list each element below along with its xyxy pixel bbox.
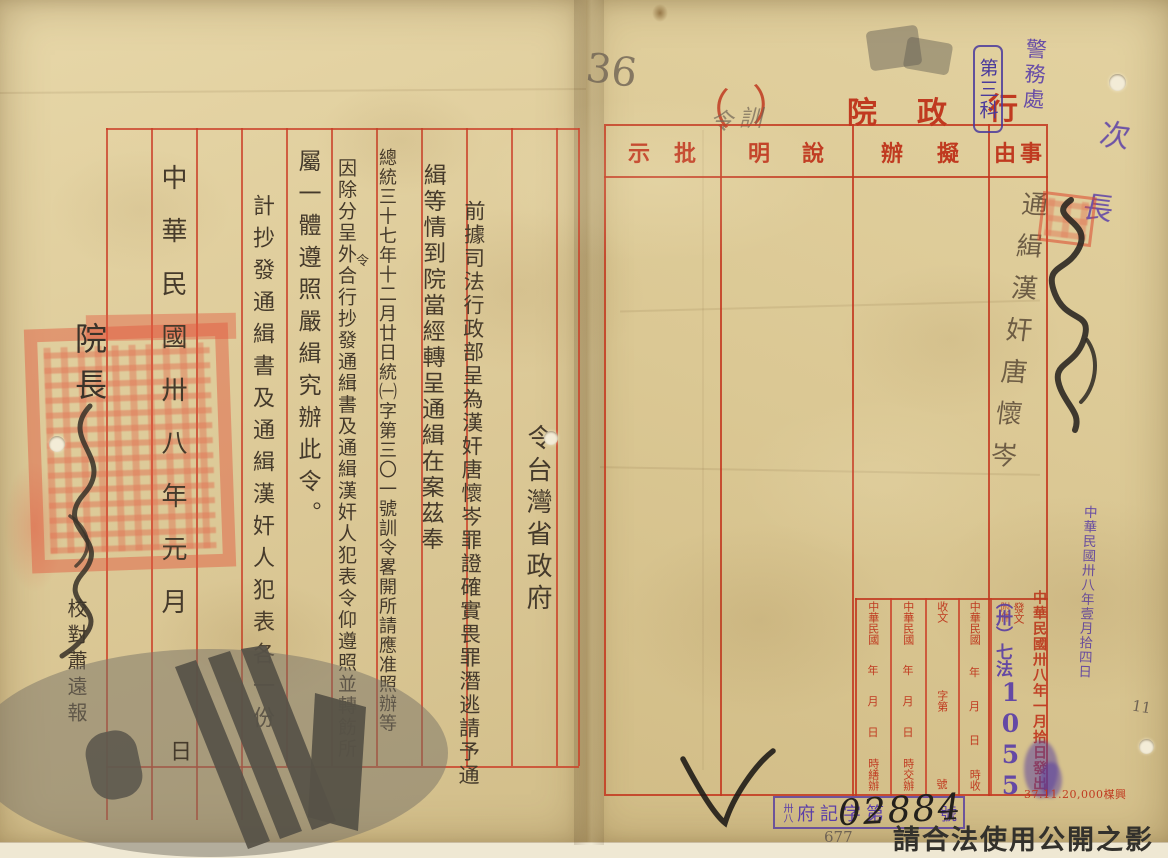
header-char: 明 xyxy=(748,136,770,168)
check-mark xyxy=(675,745,780,835)
punch-hole xyxy=(1109,74,1126,91)
era-label: 中華民國 xyxy=(969,601,981,645)
body-column-5: 屬一體遵照嚴緝究辦此令。 xyxy=(290,149,324,533)
header-char: 由 xyxy=(994,136,1016,168)
day-label: 日 xyxy=(969,735,980,747)
archive-book-watermark xyxy=(0,645,460,858)
form-column-line xyxy=(852,124,854,796)
subform-top-line xyxy=(855,598,1048,600)
premier-signature xyxy=(28,398,138,663)
dispatch-number-stamp: 1055 xyxy=(996,678,1025,802)
number-prefix-label: 字第 xyxy=(936,690,948,712)
usage-watermark-text: 請合法使用公開之影像 xyxy=(893,818,1168,858)
time-label: 時交辦 xyxy=(902,758,914,791)
registry-year: 卅八 xyxy=(781,803,791,823)
day-label: 日 xyxy=(868,727,879,739)
subform-col-assign: 中華民國 年 月 日 時交辦 xyxy=(891,601,925,791)
day-label: 日 xyxy=(903,727,914,739)
approval-signature xyxy=(1035,190,1115,440)
pencil-page-number: 11 xyxy=(1131,696,1153,717)
rule-line xyxy=(106,128,579,130)
time-label: 時繕辦 xyxy=(867,758,879,791)
date-day-character: 日 xyxy=(170,734,192,766)
receive-label: 收文 xyxy=(936,601,948,623)
header-char: 示 xyxy=(628,136,650,168)
subform-col-receive-number: 收文 字第 號 xyxy=(926,601,958,791)
header-char: 辦 xyxy=(881,136,903,168)
subform-col-receive: 中華民國 年 月 日 時收 xyxy=(959,601,990,791)
print-code: 37.11.20,000楳興 xyxy=(1024,786,1126,802)
form-header-line xyxy=(604,176,1048,178)
header-explanation: 明 說 xyxy=(732,134,840,170)
era-label: 中華民國 xyxy=(902,601,914,645)
header-char: 說 xyxy=(802,136,824,168)
section-three-stamp: 第三科 xyxy=(975,58,1002,121)
time-label: 時收 xyxy=(969,769,981,791)
ink-stain xyxy=(652,4,668,22)
header-char: 批 xyxy=(674,136,696,168)
rule-line xyxy=(578,128,580,766)
year-label: 年 xyxy=(868,665,879,677)
inserted-character: 令 xyxy=(356,250,369,269)
punch-hole xyxy=(544,431,558,445)
header-subject: 由 事 xyxy=(992,134,1044,170)
header-proposed-action: 辦 擬 xyxy=(864,134,976,170)
month-label: 月 xyxy=(903,696,914,708)
year-label: 年 xyxy=(969,667,980,679)
form-column-line xyxy=(720,124,722,796)
rule-line xyxy=(511,128,513,766)
pencil-folio-number: 36 xyxy=(583,45,639,97)
dispatch-class-stamp: （卅）七法 xyxy=(990,592,1015,677)
era-label: 中華民國 xyxy=(867,601,879,645)
header-directive: 示 批 xyxy=(616,134,708,170)
header-char: 事 xyxy=(1020,136,1042,168)
body-column-2: 緝等情到院當經轉呈通緝在案茲奉 xyxy=(413,163,450,553)
punch-hole xyxy=(1139,739,1154,754)
year-label: 年 xyxy=(903,665,914,677)
month-label: 月 xyxy=(868,696,879,708)
scanned-document: 令 台灣省政府 前據司法行政部呈為漢奸唐懷岑罪證確實畏罪潛逃請予通 緝等情到院當… xyxy=(0,0,1168,858)
subform-col-transcribe: 中華民國 年 月 日 時繕辦 xyxy=(856,601,890,791)
police-department-stamp: 警務處 xyxy=(1017,37,1051,113)
recipient: 台灣省政府 xyxy=(519,456,556,616)
date-column: 中華民國卅八年元月 xyxy=(154,164,191,641)
month-label: 月 xyxy=(969,701,980,713)
header-char: 擬 xyxy=(937,136,959,168)
punch-hole xyxy=(49,436,65,452)
section-three-stamp-box: 第三科 xyxy=(973,45,1003,133)
